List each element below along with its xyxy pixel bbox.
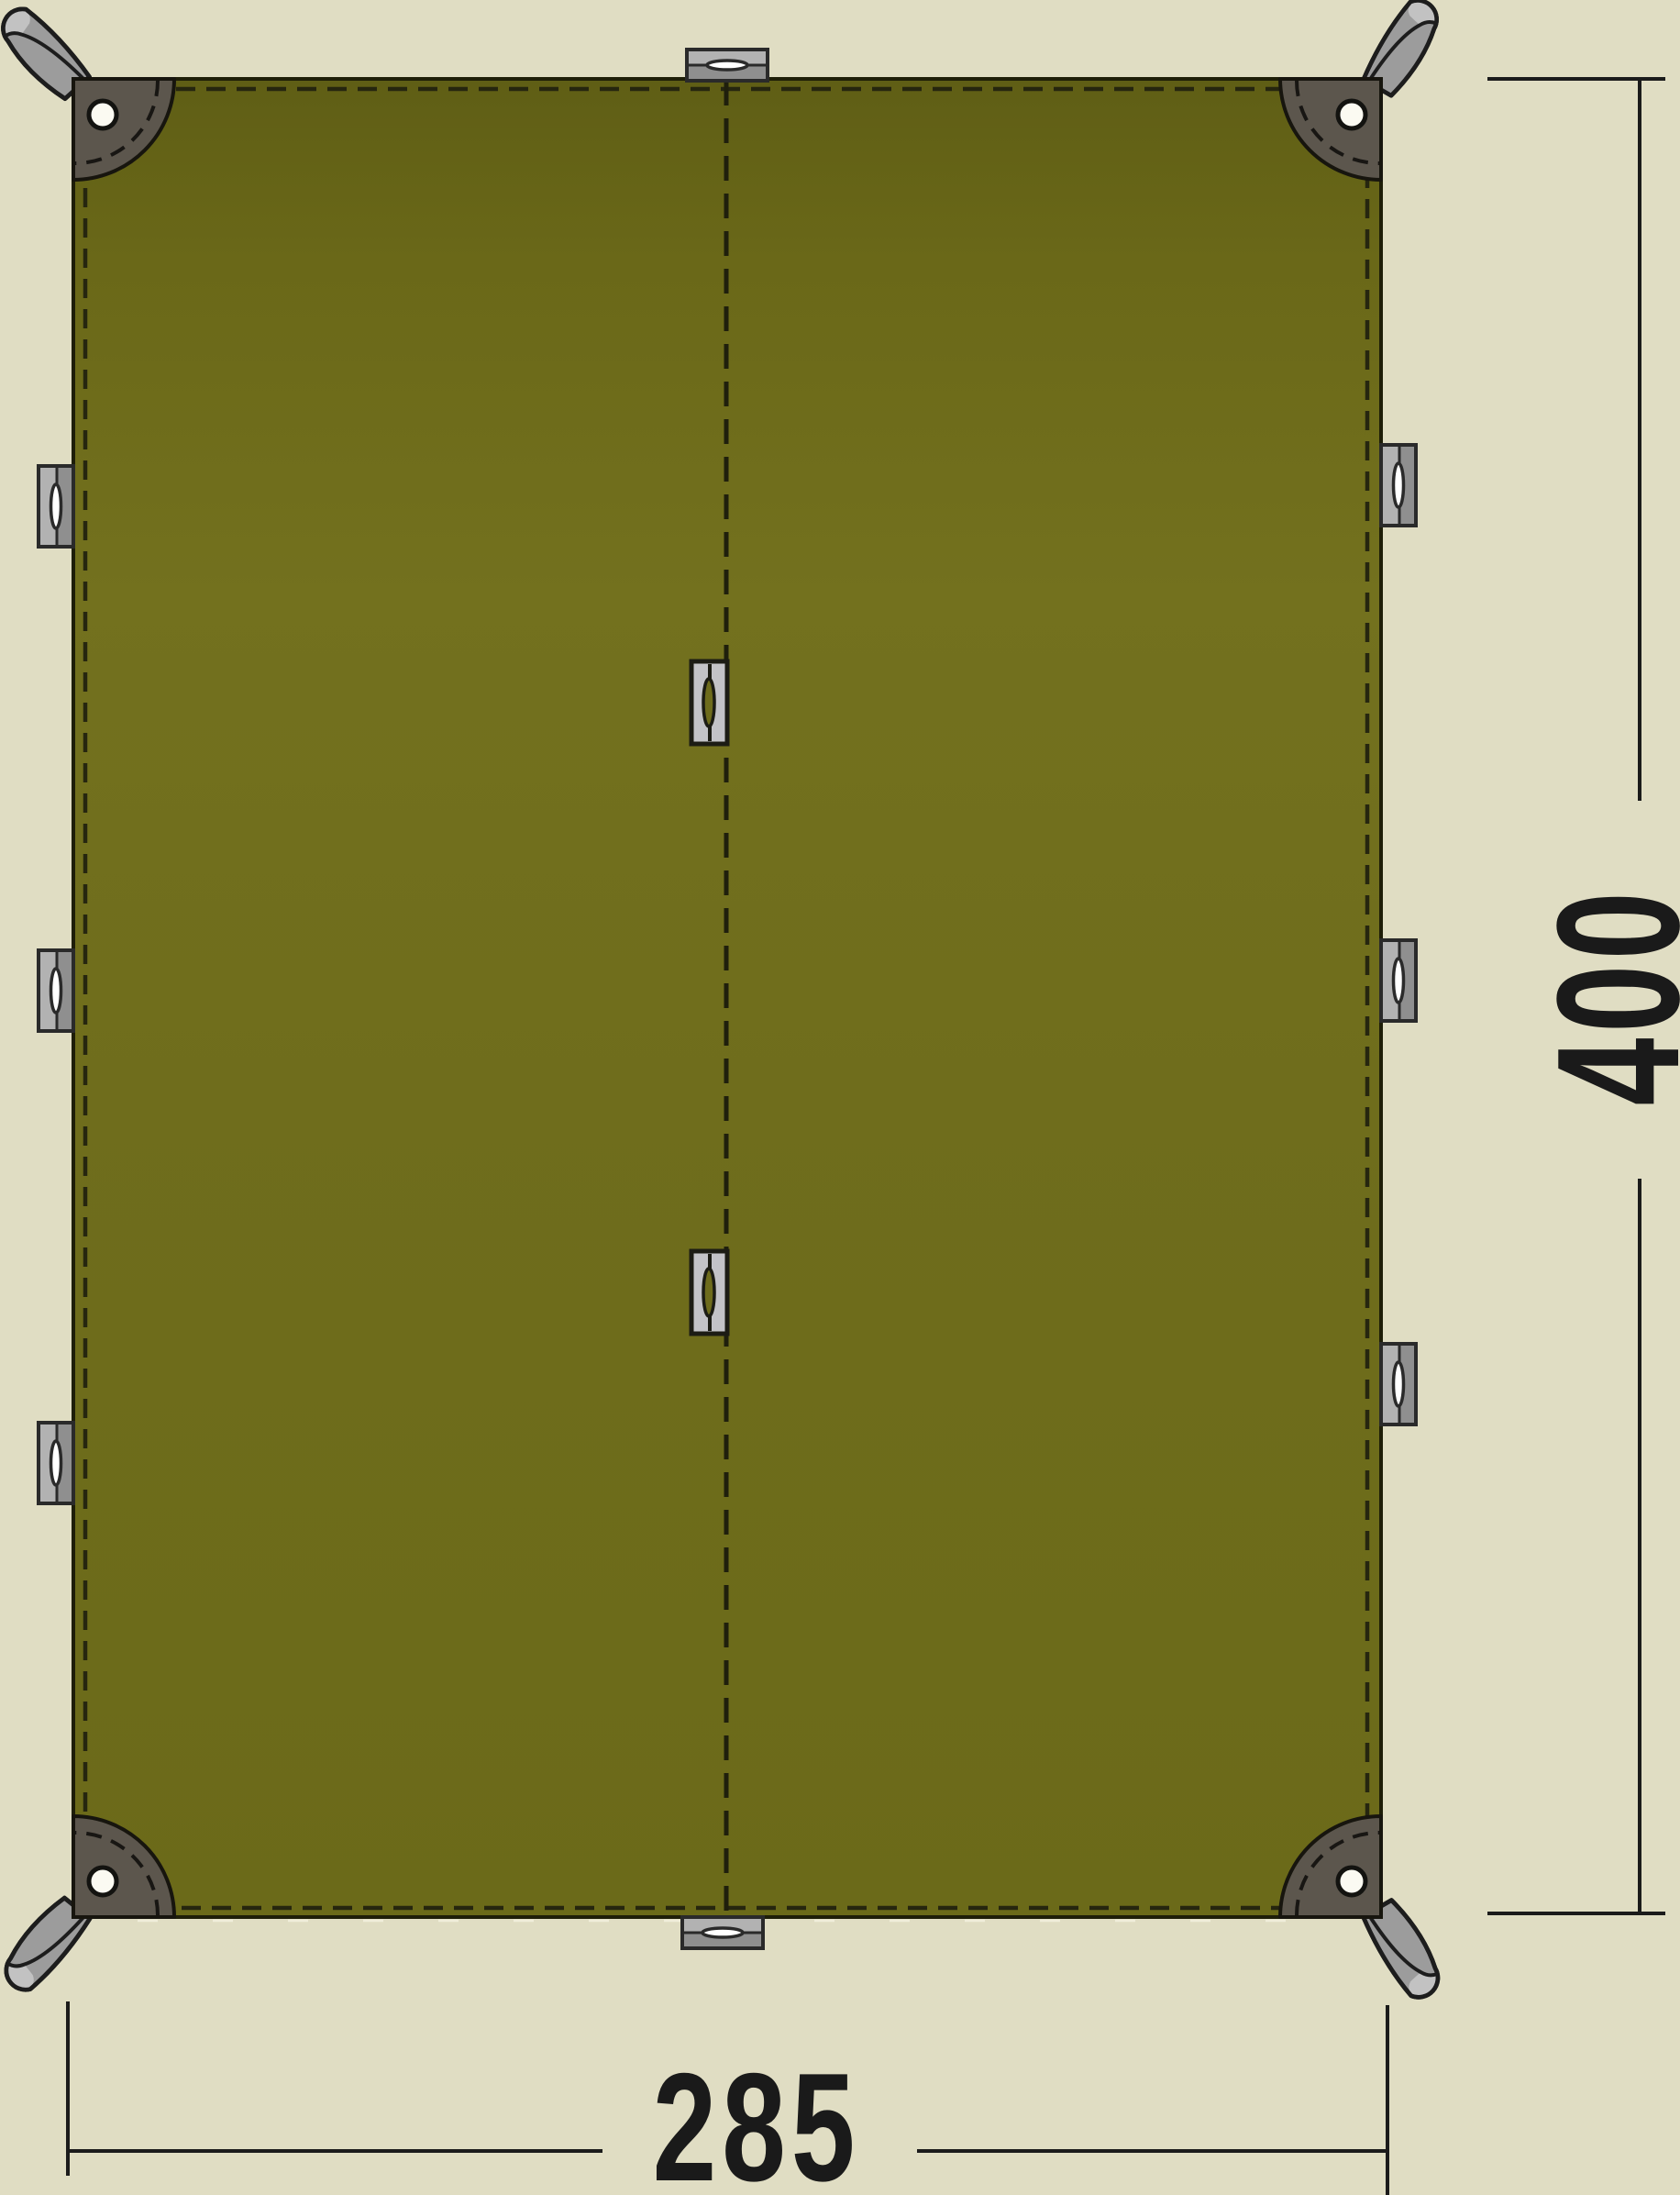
svg-text:285: 285 bbox=[653, 2042, 861, 2195]
svg-text:400: 400 bbox=[1521, 887, 1680, 1106]
